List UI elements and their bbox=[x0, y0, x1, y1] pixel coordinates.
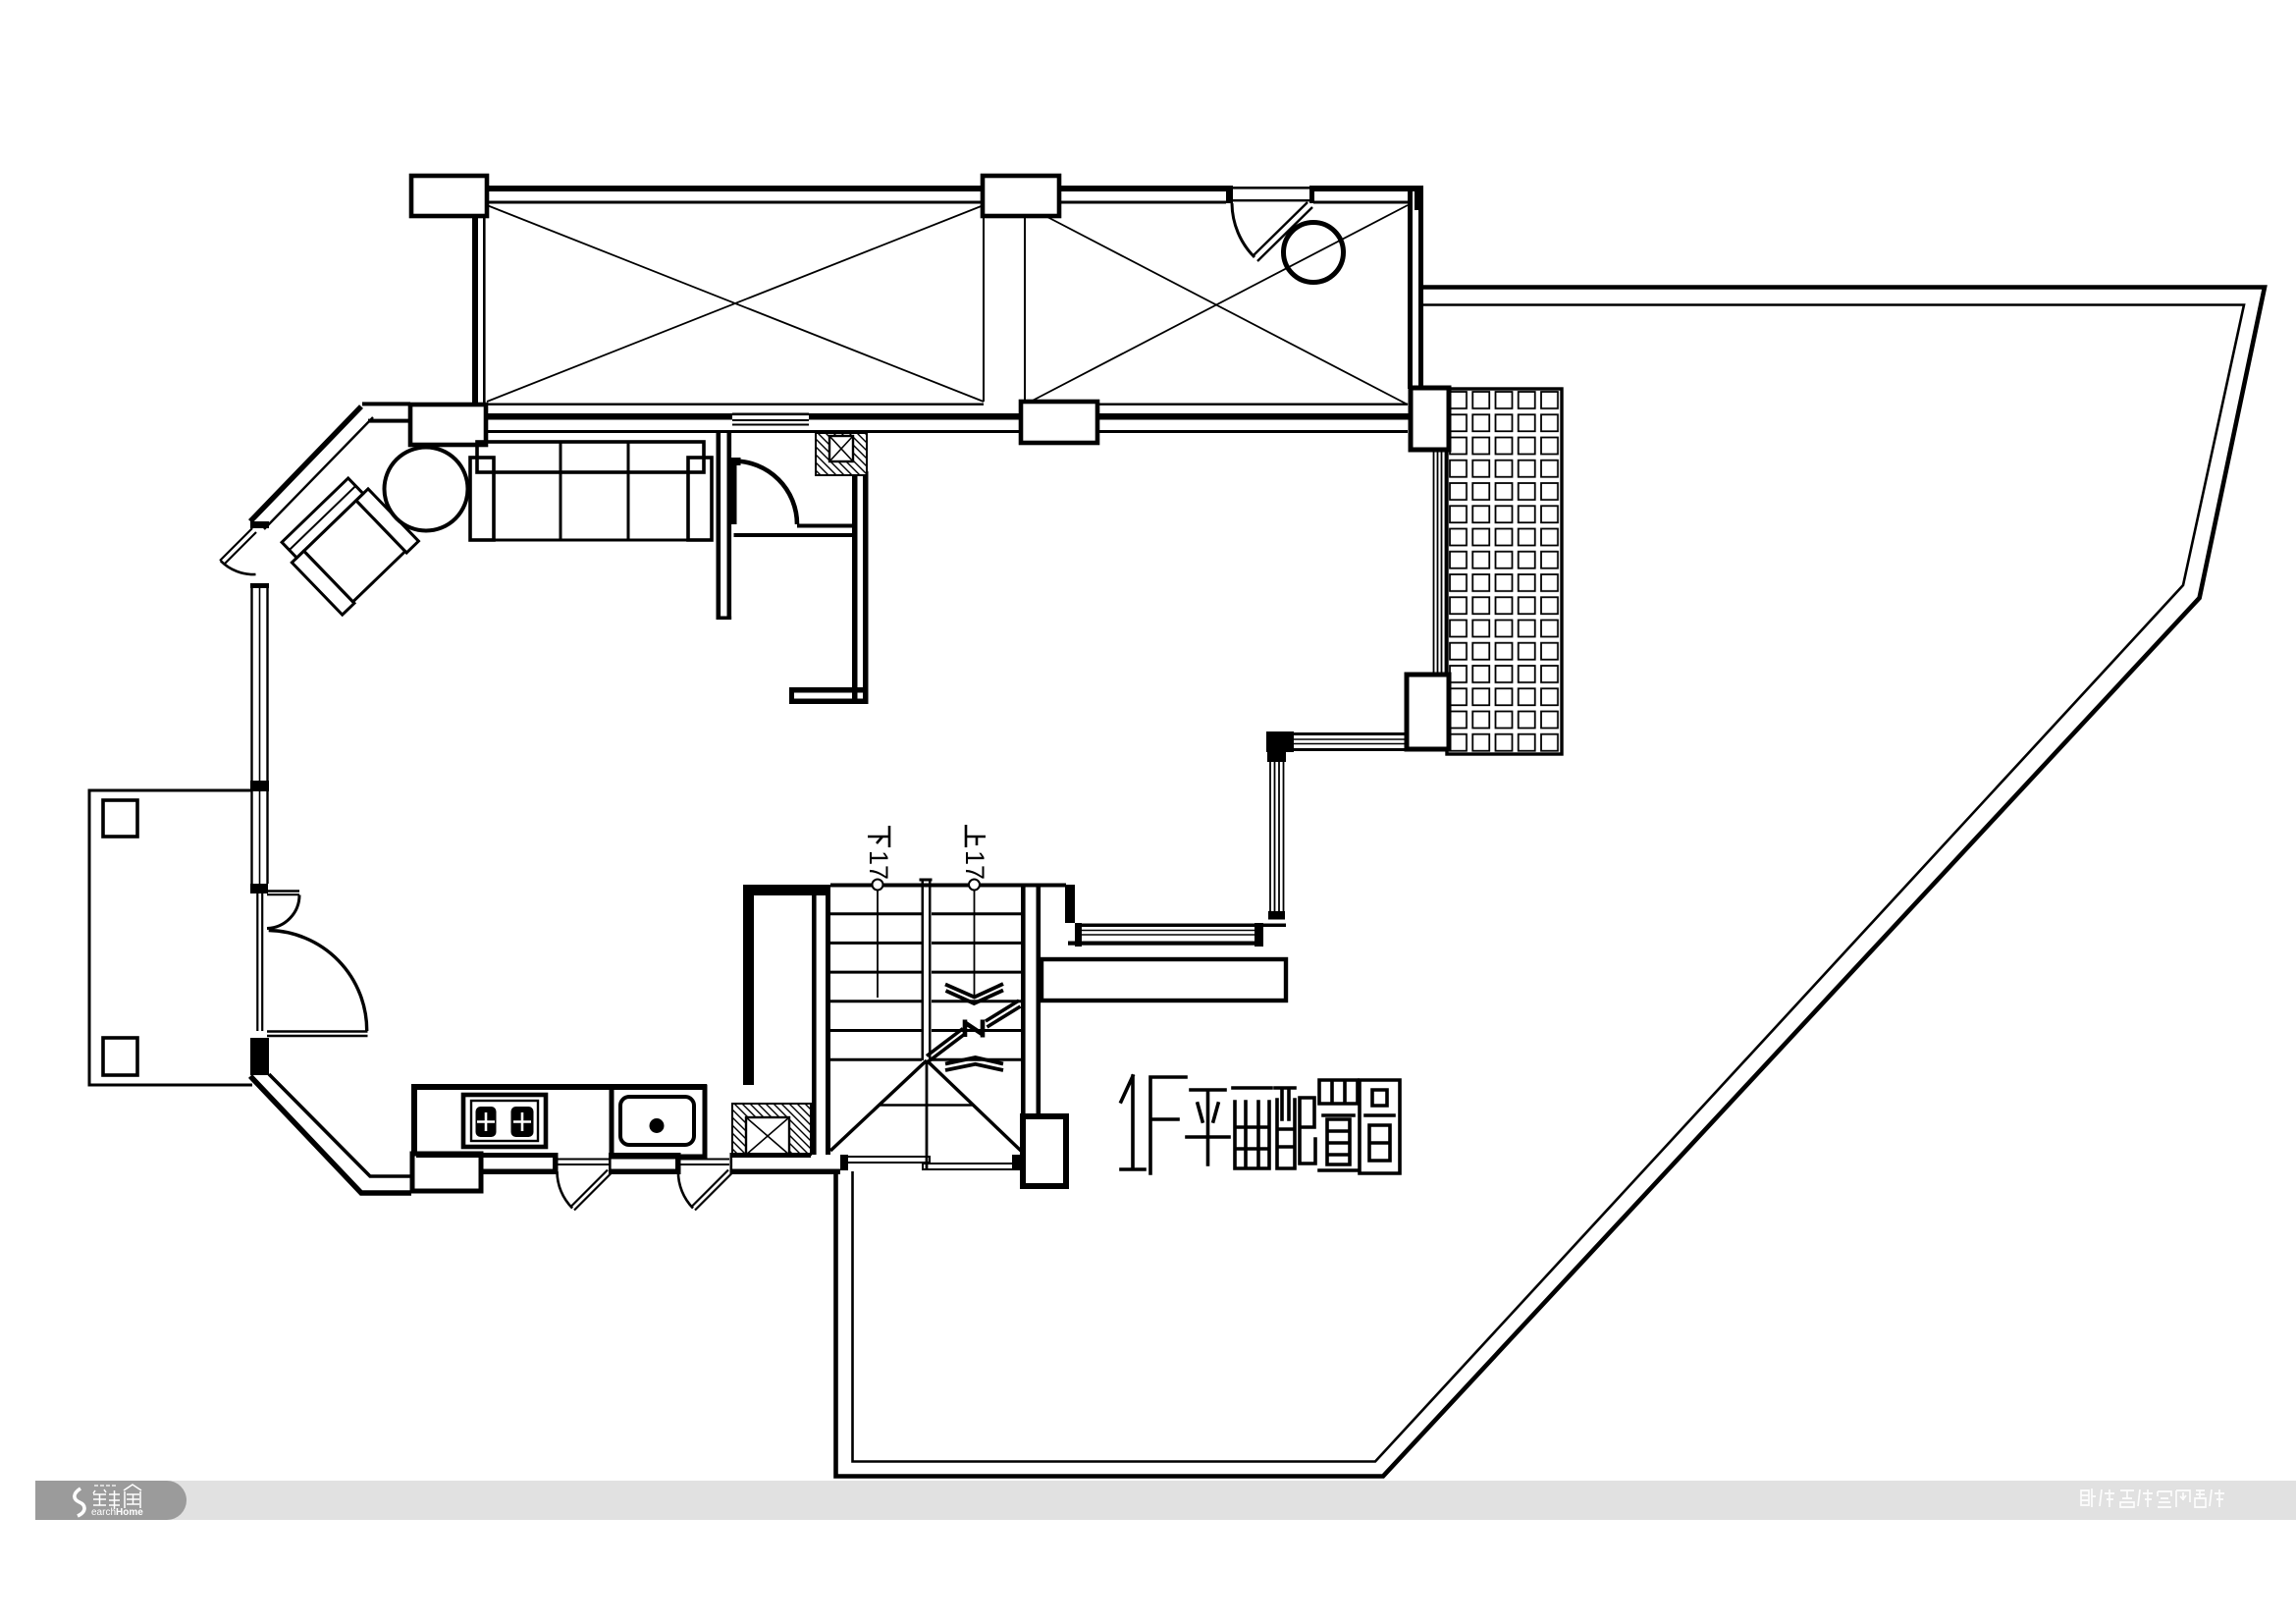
svg-text:earchHome: earchHome bbox=[91, 1507, 143, 1518]
svg-text:17: 17 bbox=[960, 850, 989, 880]
svg-text:17: 17 bbox=[864, 850, 893, 880]
